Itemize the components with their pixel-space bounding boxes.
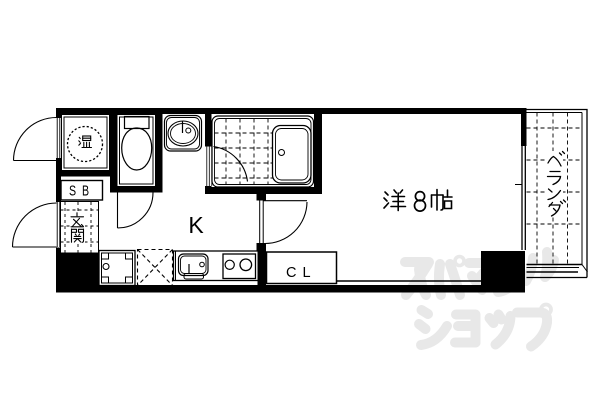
svg-text:K: K <box>188 212 204 238</box>
svg-text:C: C <box>286 265 296 281</box>
svg-text:S B: S B <box>69 183 91 199</box>
svg-text:L: L <box>303 265 311 281</box>
